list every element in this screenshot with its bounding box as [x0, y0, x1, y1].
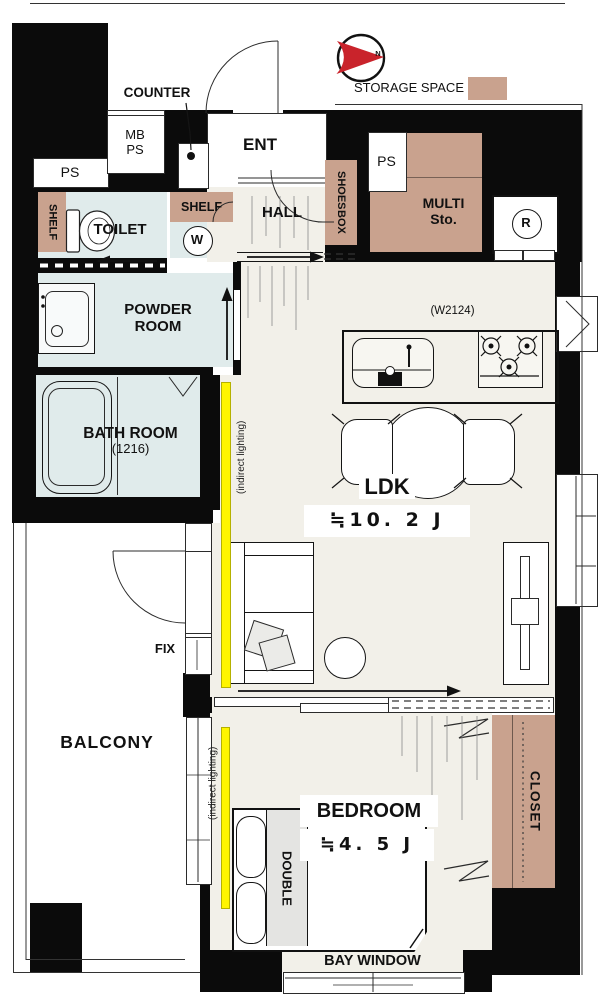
refrigerator-base: [523, 250, 555, 261]
wall-segment: [12, 497, 213, 523]
ldk-size-label: ≒10. 2 J: [304, 505, 470, 537]
legend-storage-swatch: [468, 77, 507, 100]
washer-label: W: [183, 226, 211, 254]
ldk-label: LDK: [352, 473, 422, 500]
bay-window-label: BAY WINDOW: [282, 950, 463, 972]
balcony-door-window: [185, 523, 212, 675]
powder-door-opening: [234, 290, 240, 360]
balcony-label: BALCONY: [52, 729, 162, 755]
hall-sliding-track: [237, 252, 323, 262]
bed-double-label: DOUBLE: [266, 810, 306, 946]
pillow: [236, 816, 266, 878]
bedroom-label: BEDROOM: [300, 795, 438, 827]
mb-ps-label: MBPS: [107, 120, 163, 166]
indirect-lighting-strip: [222, 383, 230, 687]
wall-toilet-sliding-door: [38, 258, 167, 273]
indirect-lighting-strip: [222, 728, 229, 908]
ps-right-label: PS: [368, 132, 405, 190]
multi-storage: [370, 192, 405, 252]
toilet-label: TOILET: [76, 220, 164, 240]
counter-cabinet: [178, 143, 209, 189]
wall-segment: [12, 367, 213, 375]
sink-faucet-base: [378, 372, 402, 386]
refrigerator-base: [494, 250, 523, 261]
shoes-box-label: SHOESBOX: [325, 160, 357, 245]
tv-board: [503, 542, 549, 685]
hall-label: HALL: [247, 202, 317, 224]
multi-storage-label: MULTISto.: [405, 190, 482, 232]
indirect-lighting-label: (indirect lighting): [205, 724, 221, 842]
wall-segment: [463, 950, 492, 992]
laundry-shelf-label: SHELF: [170, 192, 233, 222]
bay-window-frame: [283, 972, 465, 994]
refrigerator-label: R: [512, 209, 540, 237]
ps-left-label: PS: [33, 158, 107, 186]
kitchen-width-label: (W2124): [415, 304, 490, 320]
ent-label: ENT: [230, 133, 290, 157]
bedroom-size-label: ≒4. 5 J: [300, 829, 434, 861]
vanity: [38, 283, 95, 354]
stove: [478, 331, 543, 388]
powder-room-label: POWDERROOM: [103, 297, 213, 339]
dining-chair-right: [463, 419, 515, 485]
wall-segment: [30, 903, 82, 973]
compass-north-label: N: [371, 48, 385, 60]
indirect-lighting-label: (indirect lighting): [233, 398, 250, 516]
fix-window-label: FIX: [148, 640, 182, 658]
side-window: [556, 474, 598, 607]
wall-segment: [492, 888, 555, 975]
side-table: [324, 637, 366, 679]
wall-segment: [200, 950, 282, 992]
closet-label: CLOSET: [514, 715, 555, 888]
side-window: [556, 296, 598, 352]
legend-storage-label: STORAGE SPACE: [340, 77, 464, 100]
toilet-shelf-label: SHELF: [38, 192, 66, 252]
partition-panel-pocket: [388, 697, 554, 713]
wall-segment: [183, 673, 212, 717]
bath-room-label: BATH ROOM(1216): [53, 419, 208, 463]
wall-segment: [12, 177, 38, 510]
counter-label: COUNTER: [116, 84, 198, 102]
pillow: [236, 882, 266, 944]
floor-plan: STORAGE SPACE N COUNTER MBPS PS PS ENT H…: [0, 0, 600, 1005]
